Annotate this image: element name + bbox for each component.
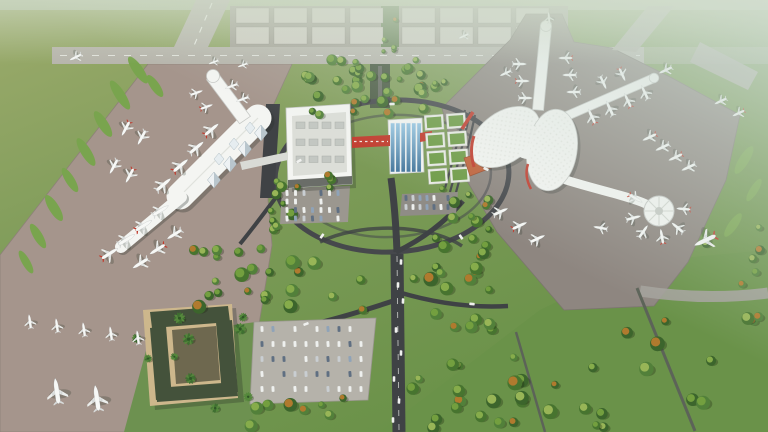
haze-top (0, 0, 768, 64)
airport-aerial-render: Aerial rendering of an airport campus: l… (0, 0, 768, 432)
haze-northeast (0, 0, 768, 432)
